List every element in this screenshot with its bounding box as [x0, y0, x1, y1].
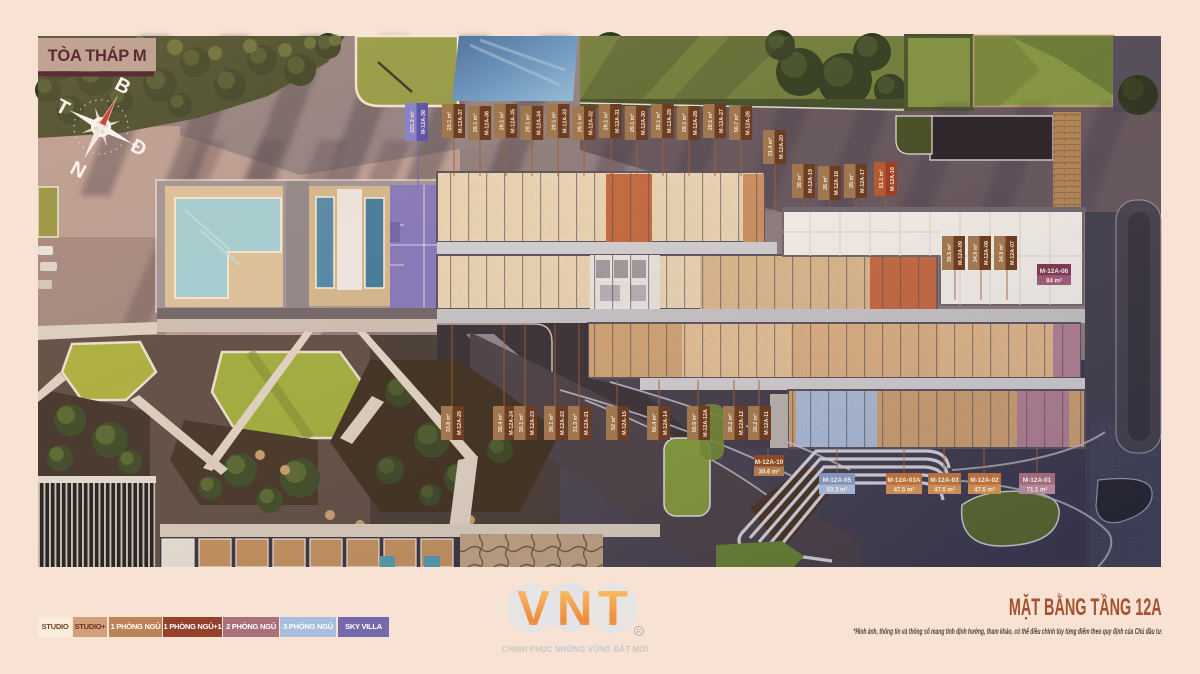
svg-text:N: N — [557, 582, 592, 636]
svg-text:M-12A-15: M-12A-15 — [622, 411, 628, 435]
svg-text:M-12A-23: M-12A-23 — [530, 411, 536, 435]
svg-text:M-12A-29: M-12A-29 — [667, 109, 673, 133]
svg-text:M-12A-36: M-12A-36 — [484, 111, 490, 135]
svg-text:84 m²: 84 m² — [1046, 278, 1062, 285]
svg-text:M-12A-08: M-12A-08 — [984, 241, 990, 265]
svg-text:M-12A-26: M-12A-26 — [745, 111, 751, 135]
svg-text:M-12A-10: M-12A-10 — [755, 459, 784, 466]
svg-text:M-12A-27: M-12A-27 — [719, 109, 725, 133]
svg-text:30.6 m²: 30.6 m² — [759, 469, 780, 476]
svg-text:47.5 m²: 47.5 m² — [934, 487, 955, 494]
svg-text:50.7 m²: 50.7 m² — [734, 114, 740, 133]
svg-text:50.4 m²: 50.4 m² — [652, 414, 658, 433]
svg-text:M-12A-30: M-12A-30 — [641, 111, 647, 135]
svg-text:71.1 m²: 71.1 m² — [1027, 487, 1048, 494]
svg-text:CHINH PHỤC NHỮNG VÙNG ĐẤT MỚI: CHINH PHỤC NHỮNG VÙNG ĐẤT MỚI — [502, 644, 649, 654]
svg-text:M-12A-34: M-12A-34 — [537, 111, 543, 135]
svg-text:29.1 m²: 29.1 m² — [552, 112, 558, 131]
svg-text:M-12A-38: M-12A-38 — [421, 110, 427, 134]
svg-text:93.3 m²: 93.3 m² — [827, 487, 848, 494]
svg-text:29.1 m²: 29.1 m² — [499, 112, 505, 131]
svg-text:M-12A-33: M-12A-33 — [563, 109, 569, 133]
svg-text:30.1 m²: 30.1 m² — [519, 414, 525, 433]
svg-text:M-12A-03: M-12A-03 — [930, 477, 959, 484]
svg-text:M-12A-31: M-12A-31 — [615, 109, 621, 133]
svg-text:M-12A-25: M-12A-25 — [457, 411, 463, 435]
svg-text:T: T — [598, 582, 628, 636]
svg-text:M-12A-11: M-12A-11 — [764, 411, 770, 435]
svg-text:M-12A-22: M-12A-22 — [560, 411, 566, 435]
svg-text:M-12A-16: M-12A-16 — [890, 167, 896, 191]
svg-text:29.1 m²: 29.1 m² — [578, 114, 584, 133]
svg-text:29.1 m²: 29.1 m² — [447, 112, 453, 131]
svg-text:M-12A-19: M-12A-19 — [808, 169, 814, 193]
svg-text:47.5 m²: 47.5 m² — [894, 487, 915, 494]
svg-text:M-12A-07: M-12A-07 — [1010, 241, 1016, 265]
svg-text:30.1 m²: 30.1 m² — [549, 414, 555, 433]
svg-text:34.9 m²: 34.9 m² — [973, 244, 979, 263]
svg-text:47.5 m²: 47.5 m² — [974, 487, 995, 494]
svg-text:TÒA THÁP M: TÒA THÁP M — [48, 46, 147, 65]
svg-text:M-12A-05: M-12A-05 — [823, 477, 852, 484]
svg-text:M-12A-02: M-12A-02 — [970, 477, 999, 484]
svg-text:31.4 m²: 31.4 m² — [768, 138, 774, 157]
svg-text:35 m²: 35 m² — [823, 176, 829, 190]
svg-text:51.1 m²: 51.1 m² — [879, 170, 885, 189]
svg-text:33.8 m²: 33.8 m² — [446, 414, 452, 433]
svg-text:29.1 m²: 29.1 m² — [630, 114, 636, 133]
svg-text:52 m²: 52 m² — [611, 416, 617, 430]
svg-text:29.1 m²: 29.1 m² — [473, 114, 479, 133]
svg-text:M-12A-20: M-12A-20 — [779, 135, 785, 159]
svg-text:35 m²: 35 m² — [849, 174, 855, 188]
svg-text:29.1 m²: 29.1 m² — [604, 112, 610, 131]
svg-text:35 m²: 35 m² — [797, 174, 803, 188]
svg-text:M-12A-17: M-12A-17 — [860, 169, 866, 193]
svg-text:M-12A-14: M-12A-14 — [663, 411, 669, 435]
svg-text:30.2 m²: 30.2 m² — [753, 414, 759, 433]
svg-text:M-12A-18: M-12A-18 — [834, 171, 840, 195]
svg-text:221.3 m²: 221.3 m² — [410, 111, 416, 133]
svg-text:34.9 m²: 34.9 m² — [999, 244, 1005, 263]
svg-text:R: R — [637, 629, 642, 636]
svg-text:30.2 m²: 30.2 m² — [728, 414, 734, 433]
svg-text:M-12A-06: M-12A-06 — [1040, 268, 1069, 275]
svg-text:29.1 m²: 29.1 m² — [708, 112, 714, 131]
svg-text:M-12A-12: M-12A-12 — [739, 411, 745, 435]
svg-text:30.4 m²: 30.4 m² — [498, 414, 504, 433]
svg-text:M-12A-12A: M-12A-12A — [703, 409, 709, 437]
svg-text:M-12A-32: M-12A-32 — [589, 111, 595, 135]
svg-text:35.5 m²: 35.5 m² — [947, 244, 953, 263]
svg-text:M-12A-35: M-12A-35 — [510, 109, 516, 133]
svg-text:M-12A-09: M-12A-09 — [958, 241, 964, 265]
svg-text:M-12A-21: M-12A-21 — [584, 411, 590, 435]
svg-text:50.5 m²: 50.5 m² — [692, 414, 698, 433]
svg-text:M-12A-01: M-12A-01 — [1023, 477, 1052, 484]
svg-text:29.1 m²: 29.1 m² — [682, 114, 688, 133]
svg-text:31.3 m²: 31.3 m² — [573, 414, 579, 433]
svg-text:29.1 m²: 29.1 m² — [656, 112, 662, 131]
svg-text:M-12A-37: M-12A-37 — [458, 109, 464, 133]
svg-text:29.1 m²: 29.1 m² — [525, 114, 531, 133]
svg-text:M-12A-03A: M-12A-03A — [887, 477, 920, 484]
svg-text:V: V — [517, 582, 550, 636]
svg-text:M-12A-28: M-12A-28 — [693, 111, 699, 135]
